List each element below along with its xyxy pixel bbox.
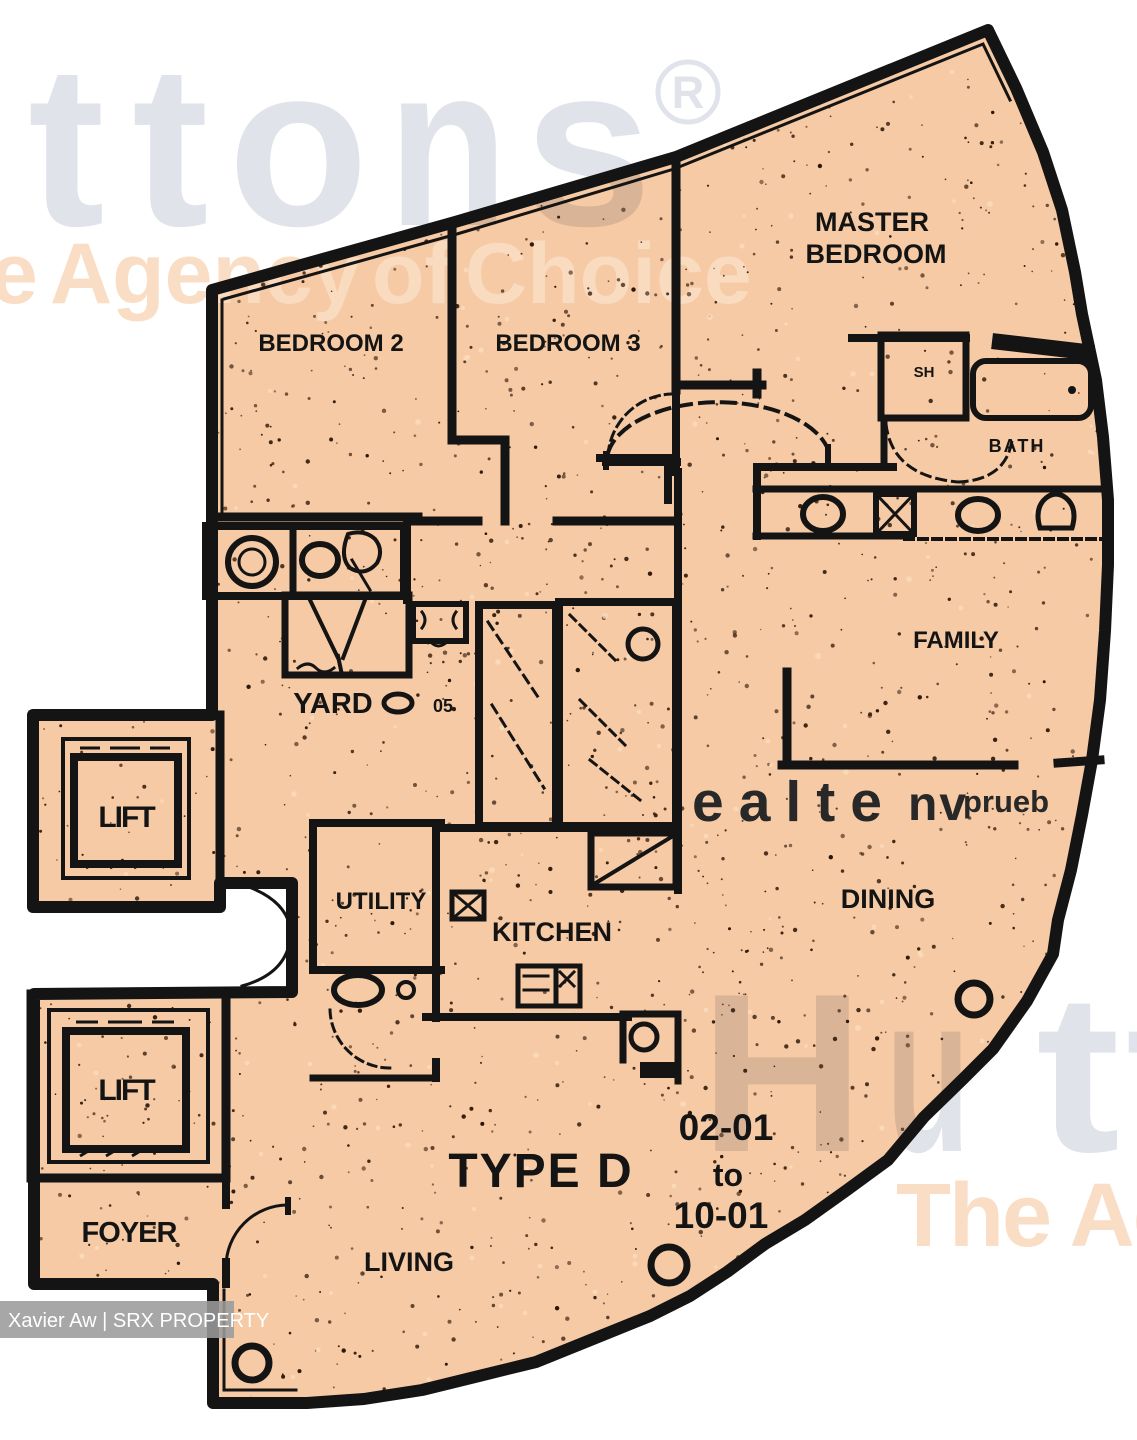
svg-text:BEDROOM: BEDROOM bbox=[806, 239, 947, 269]
svg-text:10-01: 10-01 bbox=[674, 1195, 769, 1236]
svg-text:R: R bbox=[672, 67, 705, 118]
svg-text:DINING: DINING bbox=[841, 884, 936, 914]
svg-text:prueb: prueb bbox=[963, 784, 1049, 819]
svg-text:Hutt: Hutt bbox=[700, 946, 1137, 1199]
svg-text:BEDROOM 3: BEDROOM 3 bbox=[495, 330, 640, 357]
svg-text:LIFT: LIFT bbox=[98, 1074, 155, 1107]
svg-text:FOYER: FOYER bbox=[82, 1217, 178, 1249]
svg-text:FAMILY: FAMILY bbox=[913, 627, 999, 654]
svg-text:SH: SH bbox=[914, 364, 935, 381]
svg-text:05: 05 bbox=[433, 696, 453, 716]
svg-text:LIFT: LIFT bbox=[98, 801, 155, 834]
svg-text:YARD: YARD bbox=[293, 688, 373, 720]
svg-text:02-01: 02-01 bbox=[679, 1107, 774, 1148]
svg-text:ealte: ealte bbox=[692, 770, 897, 834]
svg-text:LIVING: LIVING bbox=[364, 1247, 454, 1277]
svg-text:MASTER: MASTER bbox=[815, 207, 929, 237]
svg-text:to: to bbox=[713, 1157, 743, 1193]
svg-text:Xavier Aw | SRX PROPERTY: Xavier Aw | SRX PROPERTY bbox=[8, 1310, 269, 1332]
svg-text:uttons: uttons bbox=[0, 17, 652, 274]
svg-text:BEDROOM 2: BEDROOM 2 bbox=[258, 330, 403, 357]
svg-text:KITCHEN: KITCHEN bbox=[492, 917, 612, 947]
svg-text:UTILITY: UTILITY bbox=[336, 888, 427, 915]
svg-text:nv: nv bbox=[908, 778, 968, 831]
svg-text:BATH: BATH bbox=[989, 436, 1046, 456]
svg-text:TYPE D: TYPE D bbox=[448, 1145, 633, 1198]
